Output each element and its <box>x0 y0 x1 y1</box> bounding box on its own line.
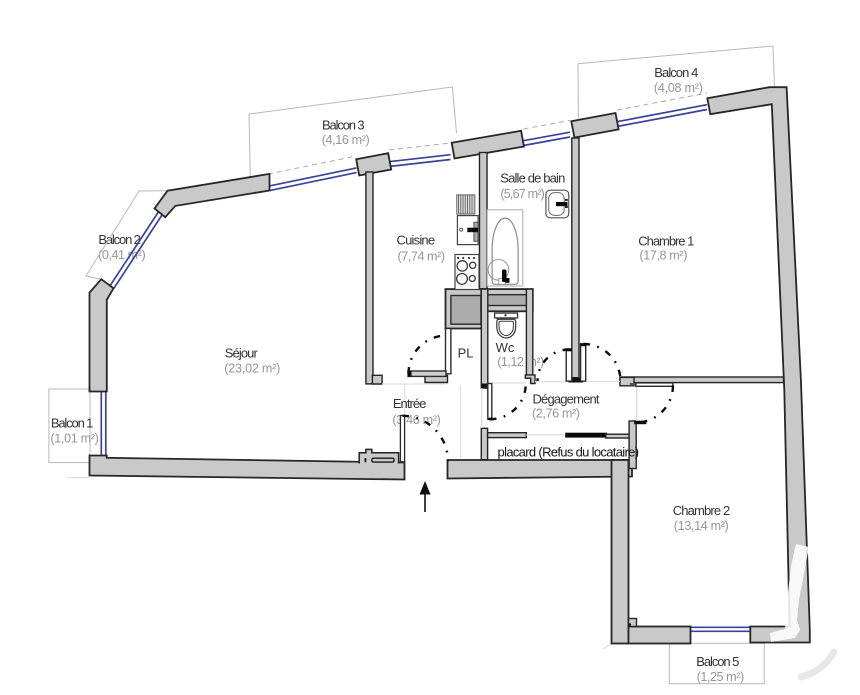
svg-text:Chambre 1: Chambre 1 <box>638 234 694 249</box>
svg-text:(4,16 m²): (4,16 m²) <box>322 133 370 147</box>
svg-text:(23,02 m²): (23,02 m²) <box>224 362 280 376</box>
svg-text:(2,76 m²): (2,76 m²) <box>532 407 580 421</box>
svg-text:Dégagement: Dégagement <box>533 392 600 407</box>
svg-text:(3,46 m²): (3,46 m²) <box>392 413 441 427</box>
svg-text:(1,01 m²): (1,01 m²) <box>50 432 99 446</box>
svg-text:(7,74 m²): (7,74 m²) <box>398 249 446 263</box>
svg-text:Balcon 2: Balcon 2 <box>98 232 141 247</box>
svg-text:Entrée: Entrée <box>393 396 427 411</box>
svg-text:(5,67 m²): (5,67 m²) <box>500 187 545 201</box>
svg-text:Séjour: Séjour <box>225 345 259 360</box>
svg-text:Balcon 5: Balcon 5 <box>696 654 739 669</box>
svg-text:(13,14 m²): (13,14 m²) <box>674 519 729 533</box>
svg-text:Chambre 2: Chambre 2 <box>673 503 731 518</box>
svg-text:Wc: Wc <box>496 340 515 355</box>
svg-text:Balcon 3: Balcon 3 <box>322 117 365 132</box>
svg-text:(1,25 m²): (1,25 m²) <box>697 670 745 684</box>
svg-text:placard (Refus du locataire): placard (Refus du locataire) <box>498 445 640 460</box>
svg-text:Cuisine: Cuisine <box>397 232 436 247</box>
svg-text:Balcon 4: Balcon 4 <box>654 65 698 80</box>
svg-text:(1,12 m²): (1,12 m²) <box>497 355 544 369</box>
svg-text:(17,8 m²): (17,8 m²) <box>639 249 687 263</box>
svg-text:(4,08 m²): (4,08 m²) <box>654 81 703 95</box>
svg-text:PL: PL <box>458 346 474 361</box>
svg-text:Balcon 1: Balcon 1 <box>51 415 94 430</box>
svg-text:Salle de bain: Salle de bain <box>500 170 565 185</box>
